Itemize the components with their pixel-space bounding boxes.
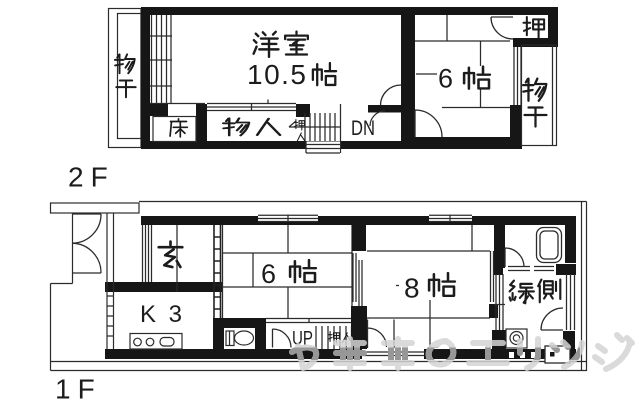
svg-text:8: 8 xyxy=(404,273,420,304)
svg-text:1F: 1F xyxy=(55,374,102,405)
svg-text:10.5: 10.5 xyxy=(247,59,308,90)
svg-text:DN: DN xyxy=(351,117,375,140)
svg-text:6: 6 xyxy=(438,64,453,94)
svg-text:6: 6 xyxy=(261,259,276,289)
svg-text:2F: 2F xyxy=(68,162,115,193)
svg-text:K 3: K 3 xyxy=(140,301,185,328)
